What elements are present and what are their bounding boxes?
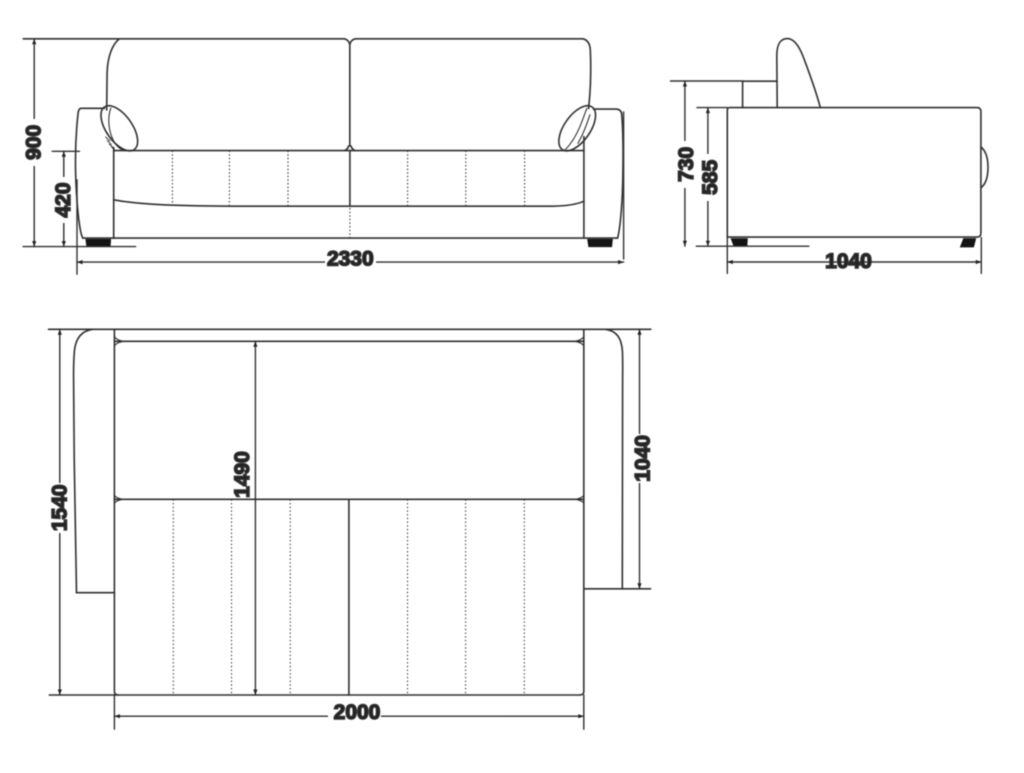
svg-text:1540: 1540	[49, 484, 72, 531]
svg-text:585: 585	[699, 160, 722, 195]
svg-text:730: 730	[675, 147, 698, 182]
svg-text:1040: 1040	[631, 435, 654, 482]
svg-text:1490: 1490	[231, 451, 254, 498]
svg-text:900: 900	[23, 125, 46, 160]
svg-text:420: 420	[52, 182, 75, 217]
svg-text:1040: 1040	[825, 250, 872, 273]
svg-text:2330: 2330	[327, 248, 374, 271]
svg-text:2000: 2000	[334, 701, 381, 724]
